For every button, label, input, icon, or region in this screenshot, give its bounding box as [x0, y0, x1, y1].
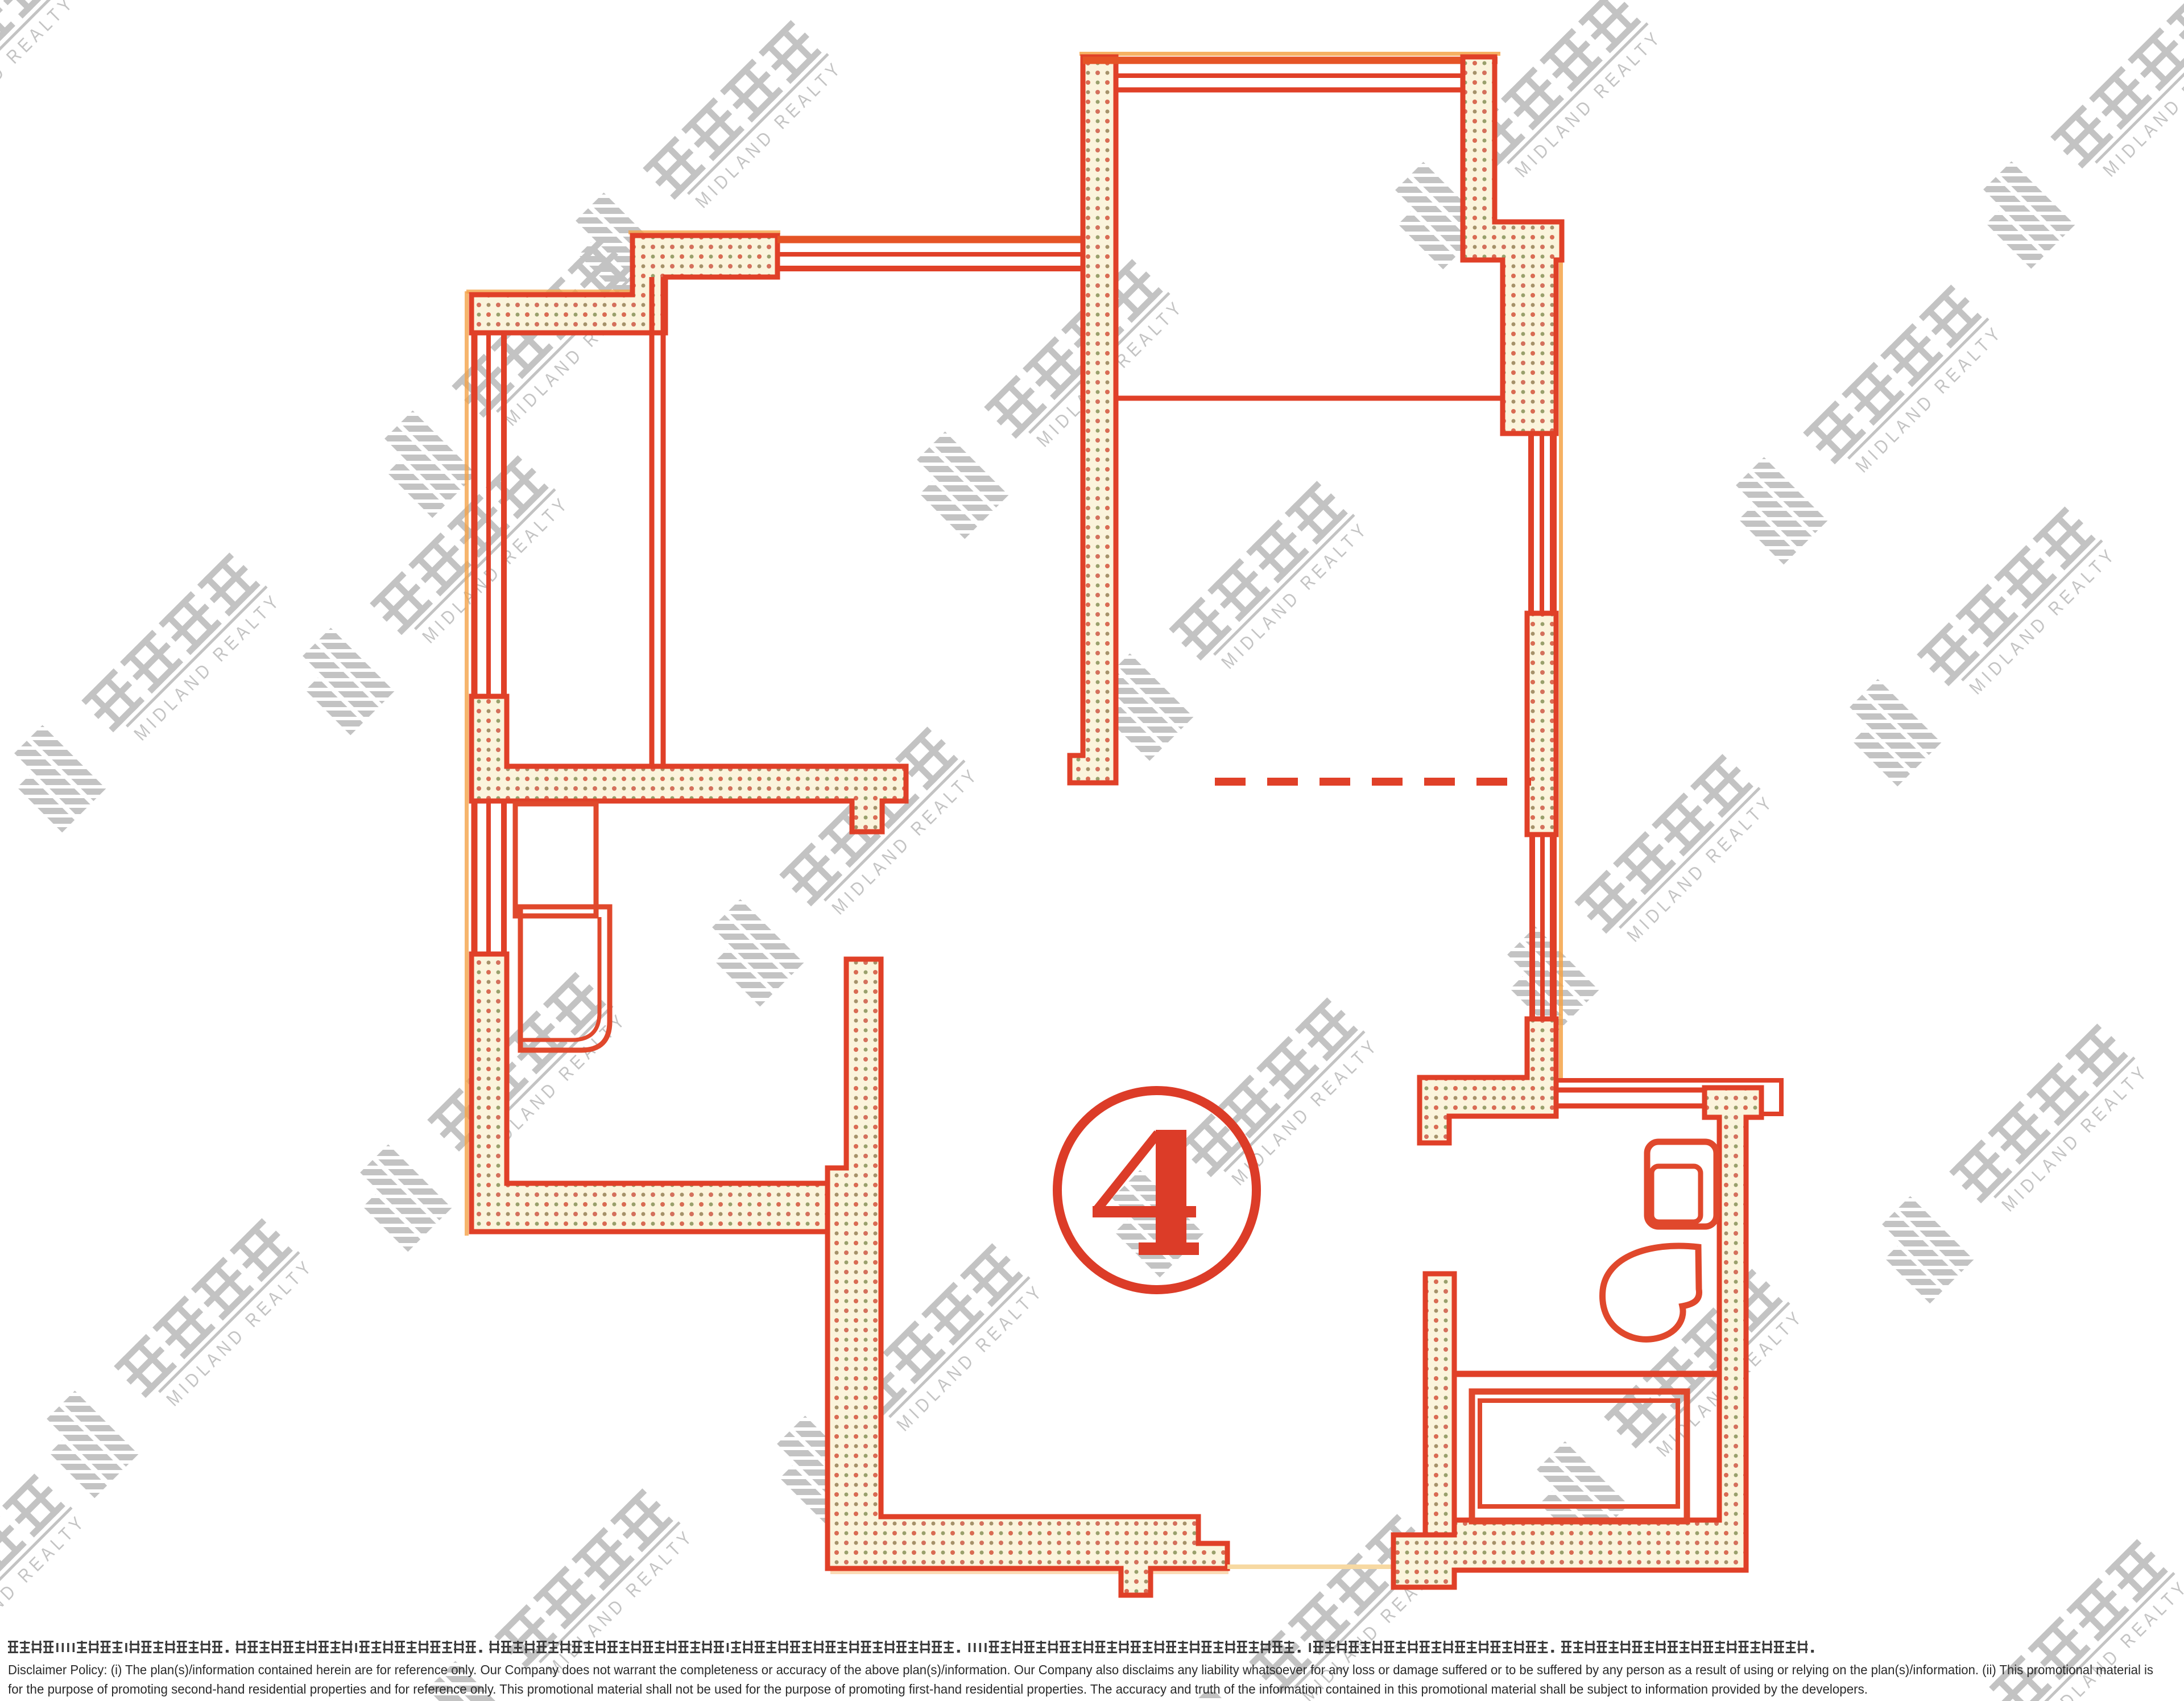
svg-text:for the purpose of promoting s: for the purpose of promoting second-hand…: [8, 1682, 1868, 1696]
svg-text:Disclaimer Policy: (i) The pla: Disclaimer Policy: (i) The plan(s)/infor…: [8, 1662, 2153, 1677]
